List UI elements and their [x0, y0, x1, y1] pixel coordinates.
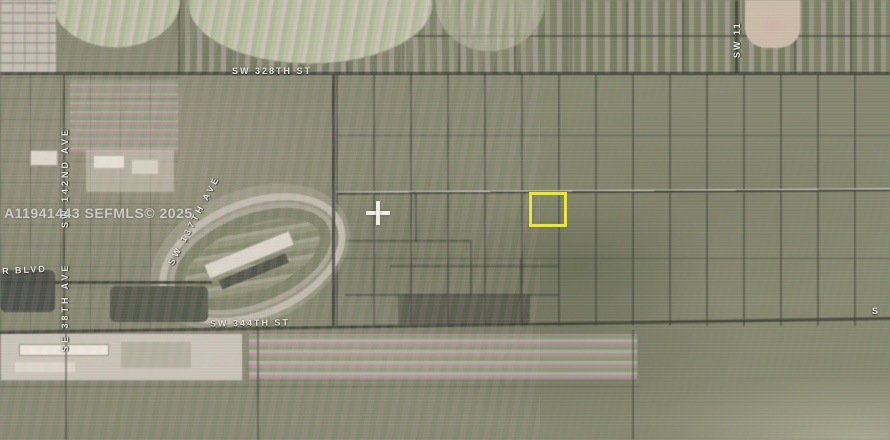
- building-cluster: [86, 150, 174, 192]
- commercial-strip: [0, 333, 243, 381]
- parcel-line: [470, 240, 472, 296]
- street-label-sw-11-partial: SW 11: [732, 21, 742, 58]
- water-pond: [110, 286, 208, 322]
- subject-parcel-highlight: [529, 192, 567, 227]
- parcel-line: [415, 193, 417, 242]
- road-sw-137th-ave: [332, 74, 335, 326]
- street-label-sw-344th-st: SW 344TH ST: [210, 317, 290, 328]
- canal: [0, 281, 212, 284]
- bare-earth-patch: [640, 370, 890, 440]
- water-pond: [0, 270, 55, 312]
- parcel-line: [340, 240, 470, 242]
- street-label-s-partial: S: [872, 306, 880, 316]
- parcel-line: [0, 386, 640, 387]
- sand-pit: [745, 0, 800, 48]
- crop-rows: [70, 80, 178, 152]
- parcel-line: [257, 327, 259, 440]
- parcel-line: [336, 258, 890, 259]
- parcel-line: [390, 265, 560, 267]
- urban-blocks: [0, 0, 56, 74]
- building: [121, 342, 191, 368]
- road-sw-328th-st: [0, 72, 890, 75]
- building: [30, 150, 58, 166]
- parcel-line: [336, 135, 890, 136]
- street-label-se-38th-ave: SE 38TH AVE: [60, 262, 70, 352]
- map-viewport[interactable]: SW 328TH ST SW 344TH ST SW 142ND AVE SE …: [0, 0, 890, 440]
- building: [132, 160, 158, 174]
- crosshair-icon: [366, 201, 390, 225]
- dark-field-patch: [398, 294, 530, 324]
- street-label-sw-328th-st: SW 328TH ST: [232, 66, 312, 76]
- mls-watermark: A11941443 SEFMLS© 2025: [4, 205, 193, 221]
- parcel-grid-right: [336, 74, 890, 326]
- crop-rows: [248, 333, 638, 380]
- crosshair-bar: [376, 201, 380, 225]
- parcel-line: [338, 35, 890, 37]
- parcel-line: [632, 330, 634, 440]
- building: [94, 156, 124, 168]
